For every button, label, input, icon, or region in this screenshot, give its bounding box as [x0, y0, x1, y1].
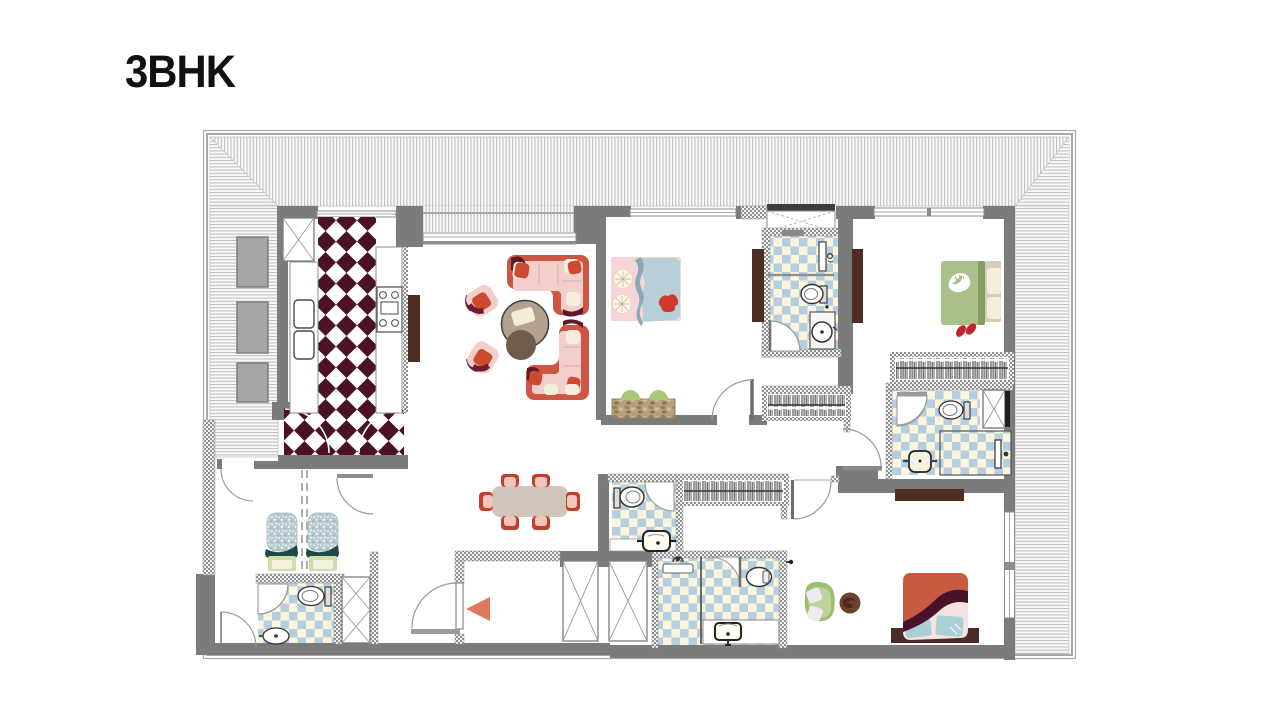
svg-text:3BHK: 3BHK — [125, 46, 236, 97]
